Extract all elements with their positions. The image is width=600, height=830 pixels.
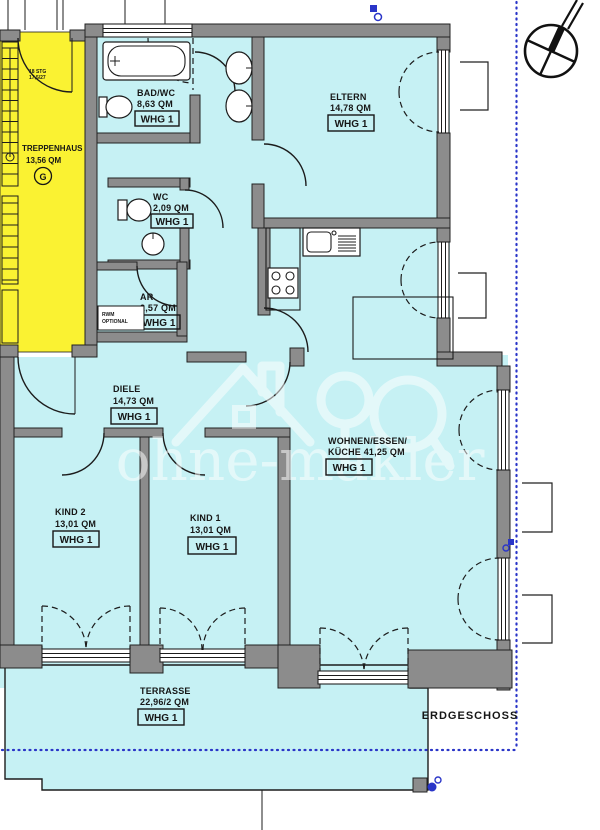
- stair-note: 17,5/27: [29, 75, 46, 81]
- unit-tag: WHG 1: [118, 412, 151, 423]
- room-name: KIND 2: [55, 507, 86, 517]
- room-name: ELTERN: [330, 92, 367, 102]
- rwm-note: RWM: [102, 312, 114, 318]
- stove-icon: [268, 268, 298, 298]
- label-bad: BAD/WC 8,63 QM WHG 1: [135, 88, 179, 126]
- boundary-marker-icon: [370, 5, 377, 12]
- room-name: KIND 1: [190, 513, 221, 523]
- room-name: TERRASSE: [140, 686, 191, 696]
- wc-toilet-icon: [118, 199, 151, 221]
- compass-north-icon: [525, 0, 583, 77]
- room-name: WC: [153, 192, 169, 202]
- room-name: BAD/WC: [137, 88, 175, 98]
- toilet-icon: [99, 96, 132, 118]
- watermark-text: ohne-makler: [116, 426, 485, 494]
- room-name: AR: [140, 292, 154, 302]
- floorplan: ohne-makler TREPPENHAUS 13,56 QM G 18 ST…: [0, 0, 600, 830]
- room-name: WOHNEN/ESSEN/: [328, 436, 407, 446]
- floorplan-page: ohne-makler TREPPENHAUS 13,56 QM G 18 ST…: [0, 0, 600, 830]
- unit-tag: WHG 1: [196, 542, 229, 553]
- room-area: 13,01 QM: [55, 519, 96, 529]
- wc-sink-icon: [142, 233, 164, 255]
- rwm-note-box: [98, 306, 144, 330]
- room-name: TREPPENHAUS: [22, 144, 83, 153]
- room-area: 2,09 QM: [153, 203, 189, 213]
- room-area: 14,78 QM: [330, 103, 371, 113]
- unit-tag: WHG 1: [156, 217, 189, 228]
- unit-tag: WHG 1: [60, 535, 93, 546]
- room-area: 13,56 QM: [26, 156, 61, 165]
- bathtub-icon: [103, 42, 190, 80]
- unit-tag: WHG 1: [145, 713, 178, 724]
- floor-label: ERDGESCHOSS: [422, 710, 519, 722]
- rwm-note: OPTIONAL: [102, 319, 128, 325]
- unit-tag: WHG 1: [335, 119, 368, 130]
- room-area: 2,57 QM: [140, 303, 176, 313]
- room-area: KÜCHE 41,25 QM: [328, 447, 405, 457]
- room-area: 22,96/2 QM: [140, 697, 189, 707]
- unit-tag: WHG 1: [333, 463, 366, 474]
- room-name: DIELE: [113, 384, 141, 394]
- room-area: 14,73 QM: [113, 396, 154, 406]
- svg-text:G: G: [39, 172, 46, 182]
- room-area: 8,63 QM: [137, 99, 173, 109]
- kitchen-sink-icon: [303, 228, 360, 256]
- room-area: 13,01 QM: [190, 525, 231, 535]
- unit-tag: WHG 1: [141, 115, 174, 126]
- unit-tag: WHG 1: [143, 318, 176, 329]
